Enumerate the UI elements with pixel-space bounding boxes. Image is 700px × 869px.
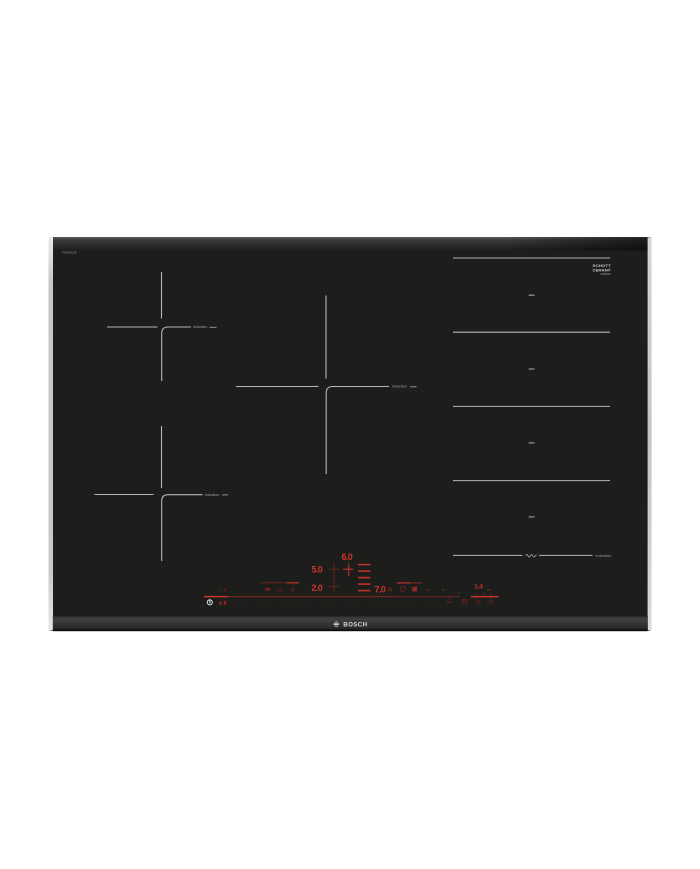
svg-text:2: 2: [245, 601, 247, 605]
svg-text:8: 8: [426, 601, 428, 605]
svg-text:8: 8: [320, 601, 322, 605]
svg-text:7: 7: [414, 601, 416, 605]
svg-text:induction: induction: [596, 553, 612, 558]
svg-text:7.0: 7.0: [375, 584, 386, 594]
svg-text:3: 3: [258, 601, 260, 605]
svg-text:9: 9: [437, 601, 439, 605]
svg-text:4: 4: [379, 601, 381, 605]
svg-text:6.0: 6.0: [342, 552, 353, 562]
svg-text:6: 6: [402, 601, 404, 605]
svg-text:5: 5: [283, 601, 285, 605]
svg-text:1: 1: [344, 601, 346, 605]
svg-text:9: 9: [332, 601, 334, 605]
svg-text:6: 6: [295, 601, 297, 605]
svg-text:3: 3: [368, 601, 370, 605]
svg-text:A: A: [219, 601, 223, 607]
svg-text:induction: induction: [193, 324, 207, 329]
svg-text:1.4: 1.4: [474, 584, 483, 591]
svg-text:CERAN®: CERAN®: [593, 269, 612, 273]
svg-text:5: 5: [391, 601, 393, 605]
svg-text:4: 4: [270, 601, 272, 605]
svg-text:1: 1: [233, 601, 235, 605]
svg-text:induction: induction: [205, 492, 220, 497]
svg-text:2.0: 2.0: [312, 583, 323, 593]
svg-text:2: 2: [356, 601, 358, 605]
svg-text:7: 7: [307, 601, 309, 605]
svg-text:induction: induction: [392, 384, 407, 389]
svg-text:5.0: 5.0: [312, 565, 323, 575]
svg-text:BOSCH: BOSCH: [343, 621, 367, 628]
svg-text:PXV875DC1E: PXV875DC1E: [62, 251, 77, 255]
